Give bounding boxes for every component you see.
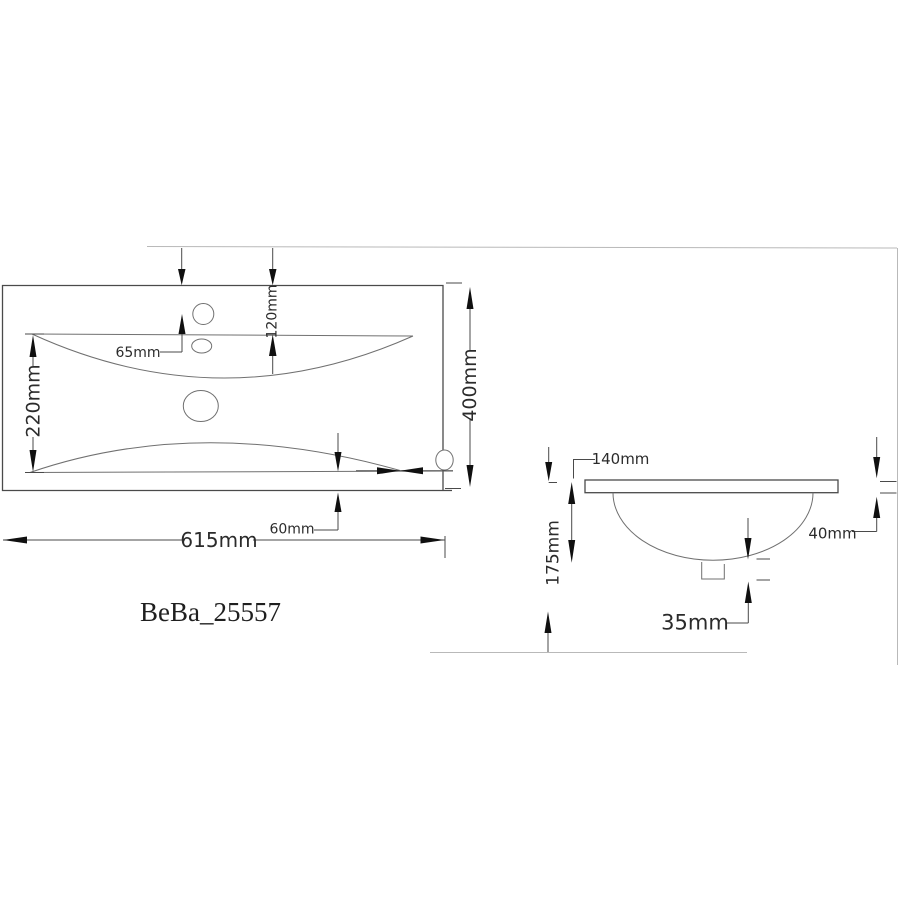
basin-front-curve [32,334,413,378]
basin-bottom-curve [30,443,400,473]
dim-60-line [314,433,342,530]
top-view: 120mm 65mm 220mm 400mm [3,248,482,558]
basin-top-chord [32,334,413,336]
model-title: BeBa_25557 [140,597,281,627]
basin-outline-rect [3,286,453,491]
dim-rim-arrow-left [178,248,186,285]
dim-140-label: 140mm [592,450,650,468]
dim-400-label: 400mm [459,348,481,421]
dim-40-line [852,437,897,532]
overflow-hole [436,450,453,470]
top-border-line [147,247,897,249]
dim-40-label: 40mm [808,525,856,543]
dim-220-label: 220mm [23,364,45,437]
sink-dimension-drawing: 120mm 65mm 220mm 400mm [0,0,900,900]
dim-65-line [160,314,186,352]
dim-175-label: 175mm [544,520,564,586]
dim-120-label: 120mm [265,285,281,339]
drain-hole [183,391,218,422]
dim-60-label: 60mm [269,522,314,538]
curve-end-arrow [356,467,453,474]
faucet-hole [193,304,214,325]
basin-rim-profile [585,480,838,493]
bowl-profile [613,493,813,561]
dim-35-line [727,518,770,623]
dim-615-label: 615mm [180,528,257,552]
drain-stub [702,562,725,579]
side-view: 175mm 140mm 35mm [544,437,897,652]
dim-35-label: 35mm [661,611,729,635]
dim-65-label: 65mm [115,345,160,361]
small-hole [192,339,212,353]
dim-140-line [568,460,595,563]
